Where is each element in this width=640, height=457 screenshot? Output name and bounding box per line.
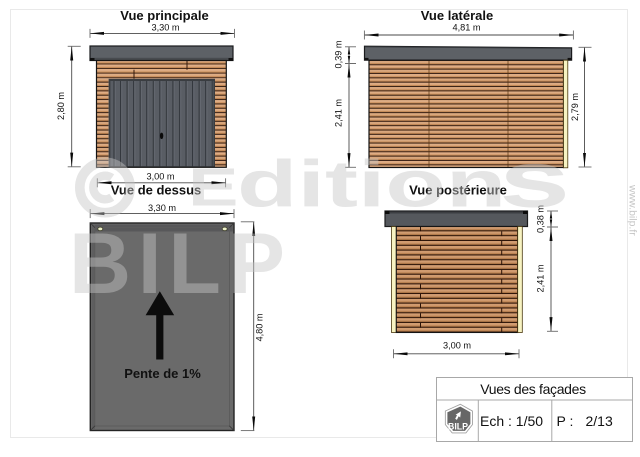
svg-text:3,30 m: 3,30 m	[148, 203, 176, 213]
svg-text:2,41 m: 2,41 m	[536, 264, 546, 292]
svg-text:4,80 m: 4,80 m	[254, 313, 264, 341]
svg-text:Vues des façades: Vues des façades	[480, 381, 586, 397]
svg-text:4,81 m: 4,81 m	[452, 23, 480, 33]
svg-text:2,79 m: 2,79 m	[570, 93, 580, 121]
svg-text:Vue principale: Vue principale	[120, 8, 208, 23]
svg-text:3,00 m: 3,00 m	[443, 341, 471, 351]
svg-text:www.bilp.fr: www.bilp.fr	[627, 184, 639, 236]
svg-text:BILP: BILP	[69, 216, 292, 312]
svg-text:2/13: 2/13	[586, 413, 613, 429]
svg-text:Vue latérale: Vue latérale	[421, 8, 494, 23]
svg-text:dition: dition	[237, 147, 506, 221]
svg-text:3,00 m: 3,00 m	[146, 172, 174, 182]
svg-text:s: s	[499, 134, 570, 224]
svg-text:BILP: BILP	[448, 422, 468, 432]
svg-text:P :: P :	[557, 413, 574, 429]
svg-text:2,41 m: 2,41 m	[334, 99, 344, 127]
svg-text:E: E	[188, 157, 238, 217]
svg-text:Pente de 1%: Pente de 1%	[124, 366, 201, 381]
svg-text:0,39 m: 0,39 m	[334, 40, 344, 68]
svg-text:2,80 m: 2,80 m	[56, 92, 66, 120]
svg-text:Ech : 1/50: Ech : 1/50	[480, 413, 543, 429]
svg-text:3,30 m: 3,30 m	[151, 23, 179, 33]
